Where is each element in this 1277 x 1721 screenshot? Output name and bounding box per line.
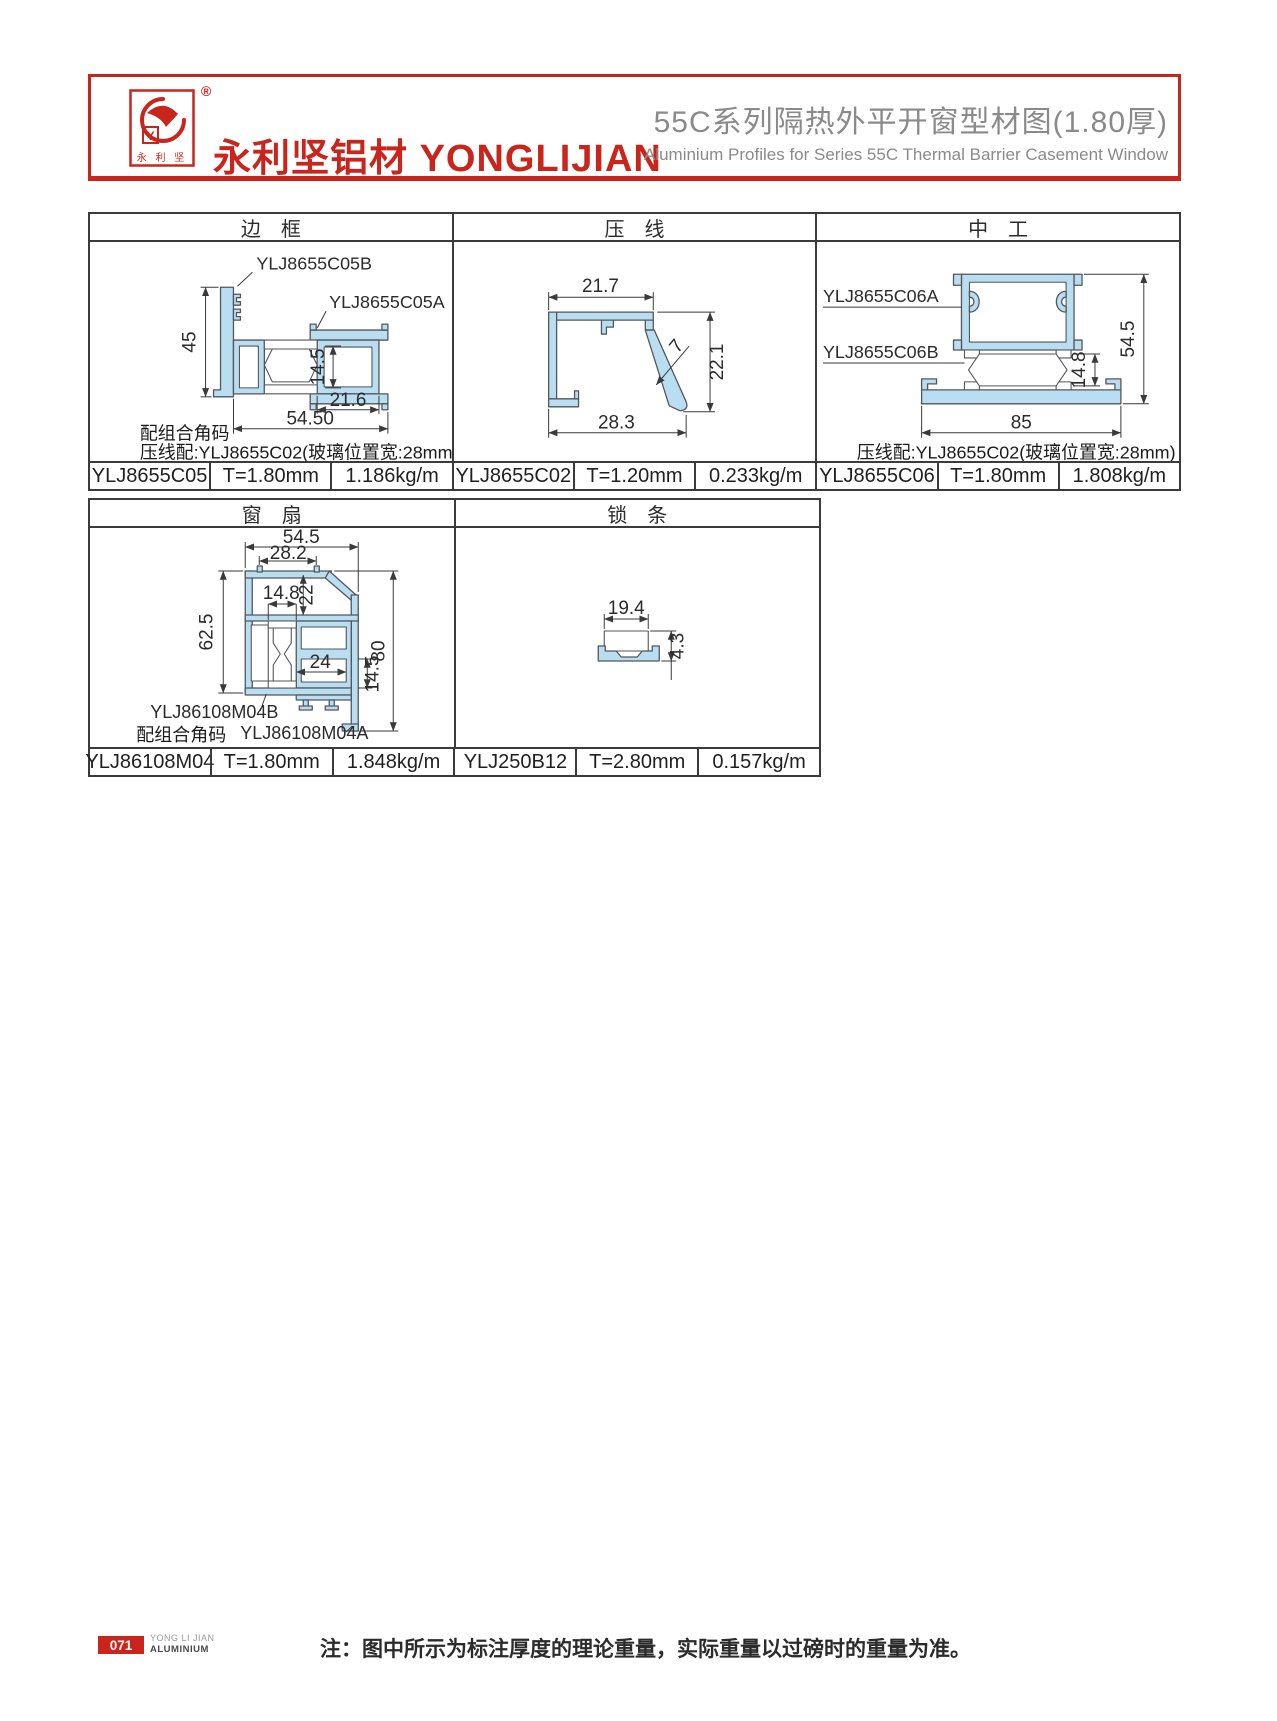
profile-table-bottom: 窗 扇 锁 条 bbox=[88, 498, 821, 777]
dim-mullion-width: 85 bbox=[1011, 413, 1032, 434]
lock-strip-profile-drawing: 19.4 4.3 bbox=[456, 528, 820, 747]
dim-bead-bottom-width: 28.3 bbox=[598, 413, 635, 434]
glazing-bead-profile-drawing: 21.7 22.1 28.3 7 bbox=[454, 242, 816, 461]
spec-thickness-frame: T=1.80mm bbox=[209, 463, 330, 489]
note-bead-match-frame: 压线配:YLJ8655C02(玻璃位置宽:28mm) bbox=[140, 443, 452, 461]
glazing-bead-drawing-cell: 21.7 22.1 28.3 7 bbox=[452, 242, 816, 461]
table2-header-row: 窗 扇 锁 条 bbox=[90, 500, 819, 526]
sash-profile-drawing: 54.5 28.2 14.8 22 62.5 24 bbox=[90, 528, 454, 747]
table1-spec-row: YLJ8655C05 T=1.80mm 1.186kg/m YLJ8655C02… bbox=[90, 461, 1179, 489]
dim-bead-face: 7 bbox=[665, 336, 688, 358]
company-name: 永利坚铝材 YONGLIJIAN bbox=[213, 127, 662, 182]
page-title: 55C系列隔热外平开窗型材图(1.80厚) bbox=[644, 97, 1168, 141]
note-corner-cleat: 配组合角码 bbox=[140, 424, 230, 444]
catalog-page: Y 永 利 坚 ® 永利坚铝材 YONGLIJIAN 55C系列隔热外平开窗型材… bbox=[0, 0, 1277, 1721]
dim-mullion-break-height: 14.8 bbox=[1069, 352, 1090, 389]
part-label-mullion-b: YLJ8655C06B bbox=[823, 342, 939, 362]
part-label-mullion-a: YLJ8655C06A bbox=[823, 286, 939, 306]
spec-thickness-bead: T=1.20mm bbox=[573, 463, 694, 489]
dim-bead-height: 22.1 bbox=[707, 344, 728, 381]
part-label-sash-b: YLJ86108M04B bbox=[150, 702, 278, 722]
registered-trademark-mark: ® bbox=[201, 83, 211, 99]
spec-code-lock: YLJ250B12 bbox=[453, 749, 575, 775]
table1-header-row: 边 框 压 线 中 工 bbox=[90, 214, 1179, 240]
column-title-frame: 边 框 bbox=[90, 214, 452, 240]
logo-mark-characters: 永 利 坚 bbox=[137, 151, 188, 164]
page-subtitle: Aluminium Profiles for Series 55C Therma… bbox=[644, 145, 1168, 165]
sash-drawing-cell: 54.5 28.2 14.8 22 62.5 24 bbox=[90, 528, 454, 747]
dim-sash-right-height: 80 bbox=[368, 640, 389, 661]
spec-thickness-sash: T=1.80mm bbox=[210, 749, 332, 775]
column-title-sash: 窗 扇 bbox=[90, 500, 454, 526]
spec-code-sash: YLJ86108M04 bbox=[90, 749, 210, 775]
spec-weight-bead: 0.233kg/m bbox=[694, 463, 815, 489]
dim-sash-left-height: 62.5 bbox=[196, 614, 217, 651]
footer-brand-line1: YONG LI JIAN bbox=[150, 1633, 215, 1643]
spec-thickness-lock: T=2.80mm bbox=[575, 749, 697, 775]
dim-sash-top-width: 28.2 bbox=[270, 543, 307, 564]
dim-lock-width: 19.4 bbox=[607, 598, 644, 619]
spec-code-mullion: YLJ8655C06 bbox=[815, 463, 936, 489]
page-title-block: 55C系列隔热外平开窗型材图(1.80厚) Aluminium Profiles… bbox=[644, 97, 1168, 165]
spec-weight-frame: 1.186kg/m bbox=[330, 463, 451, 489]
frame-drawing-cell: 45 14.5 21.6 54.50 YLJ8655C05B bbox=[90, 242, 452, 461]
dim-sash-break-width: 14.8 bbox=[263, 583, 300, 604]
mullion-drawing-cell: YLJ8655C06A YLJ8655C06B 54.5 14.8 bbox=[815, 242, 1179, 461]
footer-note: 注：图中所示为标注厚度的理论重量，实际重量以过磅时的重量为准。 bbox=[320, 1633, 971, 1663]
spec-code-bead: YLJ8655C02 bbox=[452, 463, 573, 489]
dim-sash-inner-width: 24 bbox=[310, 652, 332, 673]
lock-strip-drawing-cell: 19.4 4.3 bbox=[454, 528, 820, 747]
dim-chamber-width: 21.6 bbox=[330, 390, 367, 411]
logo-monogram: Y bbox=[146, 129, 154, 143]
footer-brand-line2: ALUMINIUM bbox=[150, 1644, 215, 1655]
dim-lock-height: 4.3 bbox=[667, 633, 688, 659]
spec-weight-lock: 0.157kg/m bbox=[697, 749, 819, 775]
footer-brand-block: YONG LI JIAN ALUMINIUM bbox=[150, 1633, 215, 1655]
dim-frame-total-width: 54.50 bbox=[287, 409, 334, 430]
part-label-frame-b: YLJ8655C05B bbox=[256, 253, 372, 273]
page-number-badge: 071 bbox=[98, 1636, 144, 1654]
spec-weight-mullion: 1.808kg/m bbox=[1058, 463, 1179, 489]
profile-table-top: 边 框 压 线 中 工 bbox=[88, 212, 1181, 491]
spec-thickness-mullion: T=1.80mm bbox=[937, 463, 1058, 489]
dim-sash-top-height: 22 bbox=[296, 584, 317, 605]
dim-chamber-height: 14.5 bbox=[308, 349, 329, 386]
table2-spec-row: YLJ86108M04 T=1.80mm 1.848kg/m YLJ250B12… bbox=[90, 747, 819, 775]
table1-drawing-row: 45 14.5 21.6 54.50 YLJ8655C05B bbox=[90, 240, 1179, 461]
note-bead-match-mullion: 压线配:YLJ8655C02(玻璃位置宽:28mm) bbox=[857, 443, 1176, 461]
spec-weight-sash: 1.848kg/m bbox=[332, 749, 454, 775]
company-name-en: YONGLIJIAN bbox=[420, 138, 662, 180]
page-header: Y 永 利 坚 ® 永利坚铝材 YONGLIJIAN 55C系列隔热外平开窗型材… bbox=[88, 74, 1181, 181]
table2-drawing-row: 54.5 28.2 14.8 22 62.5 24 bbox=[90, 526, 819, 747]
part-label-sash-a: YLJ86108M04A bbox=[240, 723, 368, 743]
dim-bead-top-width: 21.7 bbox=[582, 276, 619, 297]
company-logo-icon: Y 永 利 坚 bbox=[129, 89, 195, 167]
column-title-lock-strip: 锁 条 bbox=[454, 500, 820, 526]
column-title-mullion: 中 工 bbox=[815, 214, 1179, 240]
company-name-cn: 永利坚铝材 bbox=[213, 138, 408, 180]
note-corner-cleat-sash: 配组合角码 bbox=[136, 725, 226, 745]
spec-code-frame: YLJ8655C05 bbox=[90, 463, 209, 489]
column-title-glazing-bead: 压 线 bbox=[452, 214, 816, 240]
mullion-profile-drawing: YLJ8655C06A YLJ8655C06B 54.5 14.8 bbox=[817, 242, 1179, 461]
dim-mullion-height: 54.5 bbox=[1118, 321, 1139, 358]
frame-profile-drawing: 45 14.5 21.6 54.50 YLJ8655C05B bbox=[90, 242, 452, 461]
dim-frame-height: 45 bbox=[180, 332, 201, 353]
part-label-frame-a: YLJ8655C05A bbox=[329, 292, 445, 312]
